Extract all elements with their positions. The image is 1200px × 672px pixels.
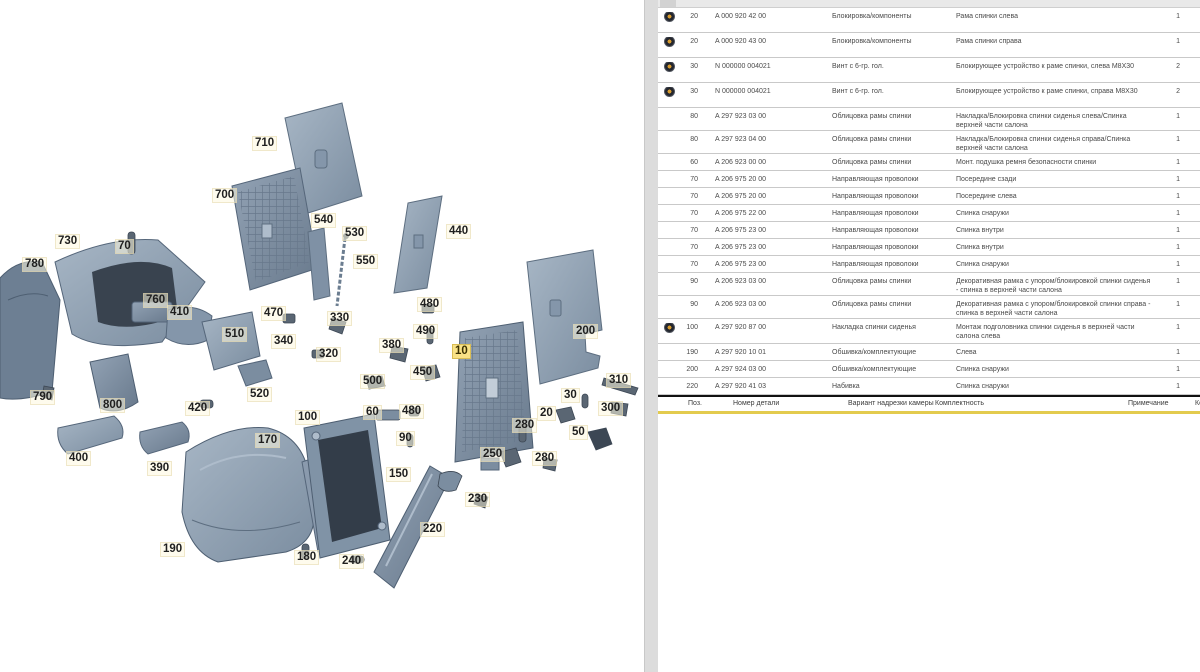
header-variant: Вариант надрезки камеры (848, 400, 934, 407)
row-quantity: 1 (1151, 112, 1187, 121)
table-row[interactable]: 30 N 000000 004021 Винт с 6-гр. гол. Бло… (658, 58, 1200, 83)
row-description: Рама спинки слева (955, 12, 1151, 21)
row-part-number: A 297 923 03 00 (698, 112, 815, 121)
diagram-callout-780[interactable]: 780 (22, 257, 47, 272)
blocks-400-390 (58, 416, 189, 454)
empty-table-area (658, 414, 1200, 654)
diagram-callout-220[interactable]: 220 (420, 522, 445, 537)
row-pos: 70 (676, 226, 698, 235)
row-quantity: 1 (1151, 348, 1187, 357)
seat-exploded-drawing (0, 0, 644, 672)
diagram-callout-500[interactable]: 500 (360, 374, 385, 389)
row-pos: 70 (676, 192, 698, 201)
row-quantity: 1 (1151, 158, 1187, 167)
diagram-callout-480[interactable]: 480 (417, 297, 442, 312)
row-part-number: A 206 923 03 00 (698, 300, 815, 309)
table-row[interactable]: 80 A 297 923 04 00 Облицовка рамы спинки… (658, 131, 1200, 154)
row-part-name: Направляющая проволоки (815, 209, 955, 218)
row-part-name: Обшивка/комплектующие (815, 348, 955, 357)
row-quantity: 2 (1151, 87, 1187, 96)
diagram-callout-380[interactable]: 380 (379, 338, 404, 353)
diagram-callout-250[interactable]: 250 (480, 447, 505, 462)
diagram-callout-550[interactable]: 550 (353, 254, 378, 269)
diagram-callout-150[interactable]: 150 (386, 467, 411, 482)
table-row[interactable]: 20 A 000 920 42 00 Блокировка/компоненты… (658, 8, 1200, 33)
info-icon[interactable] (664, 37, 675, 47)
row-quantity: 2 (1151, 62, 1187, 71)
scroll-corner (660, 0, 676, 7)
row-part-number: A 206 923 00 00 (698, 158, 815, 167)
next-group-header-row: Поз. Номер детали Вариант надрезки камер… (658, 395, 1200, 414)
row-part-number: A 206 975 20 00 (698, 175, 815, 184)
row-quantity: 1 (1151, 300, 1187, 309)
row-pos: 30 (676, 62, 698, 71)
row-quantity: 1 (1151, 12, 1187, 21)
row-pos: 70 (676, 175, 698, 184)
row-part-name: Облицовка рамы спинки (815, 135, 955, 144)
row-pos: 90 (676, 300, 698, 309)
pane-divider-scrollbar[interactable] (644, 0, 659, 672)
row-part-number: A 206 923 03 00 (698, 277, 815, 286)
diagram-callout-520[interactable]: 520 (247, 387, 272, 402)
row-description: Декоративная рамка с упором/блокировкой … (955, 277, 1151, 295)
row-pos: 80 (676, 135, 698, 144)
diagram-callout-100[interactable]: 100 (295, 410, 320, 425)
table-top-strip (658, 0, 1200, 8)
row-part-number: A 000 920 42 00 (698, 12, 815, 21)
diagram-callout-760[interactable]: 760 (143, 293, 168, 308)
info-icon[interactable] (664, 12, 675, 22)
row-quantity: 1 (1151, 37, 1187, 46)
row-part-number: A 206 975 22 00 (698, 209, 815, 218)
row-pos: 20 (676, 12, 698, 21)
table-row[interactable]: 70 A 206 975 23 00 Направляющая проволок… (658, 239, 1200, 256)
row-part-number: A 297 920 41 03 (698, 382, 815, 391)
diagram-callout-540[interactable]: 540 (311, 213, 336, 228)
diagram-callout-730[interactable]: 730 (55, 234, 80, 249)
header-pos: Поз. (688, 400, 702, 407)
row-pos: 90 (676, 277, 698, 286)
row-pos: 70 (676, 243, 698, 252)
table-row[interactable]: 80 A 297 923 03 00 Облицовка рамы спинки… (658, 108, 1200, 131)
row-part-number: A 206 975 23 00 (698, 243, 815, 252)
row-pos: 30 (676, 87, 698, 96)
diagram-callout-90[interactable]: 90 (396, 431, 415, 446)
diagram-callout-330[interactable]: 330 (327, 311, 352, 326)
diagram-callout-530[interactable]: 530 (342, 226, 367, 241)
diagram-callout-710[interactable]: 710 (252, 136, 277, 151)
row-pos: 80 (676, 112, 698, 121)
row-part-name: Блокировка/компоненты (815, 12, 955, 21)
diagram-callout-410[interactable]: 410 (167, 305, 192, 320)
table-row[interactable]: 70 A 206 975 22 00 Направляющая проволок… (658, 205, 1200, 222)
row-part-number: N 000000 004021 (698, 87, 815, 96)
diagram-callout-340[interactable]: 340 (271, 334, 296, 349)
info-icon[interactable] (664, 87, 675, 97)
row-part-number: A 000 920 43 00 (698, 37, 815, 46)
row-part-name: Винт с 6-гр. гол. (815, 87, 955, 96)
row-pos: 20 (676, 37, 698, 46)
diagram-callout-200[interactable]: 200 (573, 324, 598, 339)
row-description: Блокирующее устройство к раме спинки, сп… (955, 87, 1151, 96)
table-row[interactable]: 60 A 206 923 00 00 Облицовка рамы спинки… (658, 154, 1200, 171)
row-description: Посередине слева (955, 192, 1151, 201)
info-icon[interactable] (664, 323, 675, 333)
row-part-name: Винт с 6-гр. гол. (815, 62, 955, 71)
diagram-callout-50[interactable]: 50 (569, 425, 588, 440)
row-part-number: N 000000 004021 (698, 62, 815, 71)
row-part-number: A 297 924 03 00 (698, 365, 815, 374)
row-part-name: Направляющая проволоки (815, 226, 955, 235)
backrest-cushion-190 (182, 428, 314, 563)
row-part-name: Блокировка/компоненты (815, 37, 955, 46)
row-quantity: 1 (1151, 382, 1187, 391)
diagram-callout-60[interactable]: 60 (363, 405, 382, 420)
diagram-callout-470[interactable]: 470 (261, 306, 286, 321)
back-panel-200 (527, 250, 602, 384)
backrest-frame-100 (304, 414, 390, 558)
row-pos: 100 (676, 323, 698, 332)
diagram-callout-230[interactable]: 230 (465, 492, 490, 507)
row-quantity: 1 (1151, 209, 1187, 218)
table-row[interactable]: 90 A 206 923 03 00 Облицовка рамы спинки… (658, 296, 1200, 319)
row-quantity: 1 (1151, 365, 1187, 374)
diagram-callout-280[interactable]: 280 (512, 418, 537, 433)
row-quantity: 1 (1151, 226, 1187, 235)
row-part-name: Облицовка рамы спинки (815, 112, 955, 121)
diagram-callout-190[interactable]: 190 (160, 542, 185, 557)
row-pos: 220 (676, 382, 698, 391)
row-quantity: 1 (1151, 192, 1187, 201)
diagram-callout-440[interactable]: 440 (446, 224, 471, 239)
row-description: Спинка внутри (955, 226, 1151, 235)
table-row[interactable]: 190 A 297 920 10 01 Обшивка/комплектующи… (658, 344, 1200, 361)
row-part-name: Направляющая проволоки (815, 243, 955, 252)
row-part-name: Накладка спинки сиденья (815, 323, 955, 332)
row-part-name: Набивка (815, 382, 955, 391)
diagram-callout-480[interactable]: 480 (399, 404, 424, 419)
row-description: Монтаж подголовника спинки сиденья в вер… (955, 323, 1151, 341)
row-part-name: Направляющая проволоки (815, 260, 955, 269)
row-quantity: 1 (1151, 277, 1187, 286)
row-quantity: 1 (1151, 260, 1187, 269)
row-description: Декоративная рамка с упором/блокировкой … (955, 300, 1151, 318)
row-description: Спинка снаружи (955, 209, 1151, 218)
diagram-callout-400[interactable]: 400 (66, 451, 91, 466)
header-completeness: Комплектность (935, 400, 984, 407)
diagram-callout-490[interactable]: 490 (413, 324, 438, 339)
row-part-number: A 297 920 10 01 (698, 348, 815, 357)
row-quantity: 1 (1151, 135, 1187, 144)
row-pos: 70 (676, 260, 698, 269)
exploded-diagram-pane: 7107007307078054053055044076041047033048… (0, 0, 644, 672)
diagram-callout-30[interactable]: 30 (561, 388, 580, 403)
row-part-name: Направляющая проволоки (815, 192, 955, 201)
diagram-callout-180[interactable]: 180 (294, 550, 319, 565)
row-part-number: A 297 920 87 00 (698, 323, 815, 332)
row-part-number: A 297 923 04 00 (698, 135, 815, 144)
diagram-callout-70[interactable]: 70 (115, 239, 134, 254)
row-description: Спинка снаружи (955, 365, 1151, 374)
diagram-callout-700[interactable]: 700 (212, 188, 237, 203)
row-description: Спинка снаружи (955, 260, 1151, 269)
diagram-callout-510[interactable]: 510 (222, 327, 247, 342)
table-row[interactable]: 70 A 206 975 20 00 Направляющая проволок… (658, 171, 1200, 188)
row-part-name: Облицовка рамы спинки (815, 300, 955, 309)
table-row[interactable]: 220 A 297 920 41 03 Набивка Спинка снару… (658, 378, 1200, 395)
side-panel-440 (394, 196, 442, 293)
row-quantity: 1 (1151, 323, 1187, 332)
table-row[interactable]: 20 A 000 920 43 00 Блокировка/компоненты… (658, 33, 1200, 58)
parts-table-body: 20 A 000 920 42 00 Блокировка/компоненты… (658, 8, 1200, 395)
table-row[interactable]: 70 A 206 975 23 00 Направляющая проволок… (658, 222, 1200, 239)
row-description: Спинка снаружи (955, 382, 1151, 391)
diagram-callout-300[interactable]: 300 (598, 401, 623, 416)
diagram-callout-10-selected[interactable]: 10 (452, 344, 471, 359)
wedge-510-520 (202, 312, 272, 386)
table-row[interactable]: 70 A 206 975 23 00 Направляющая проволок… (658, 256, 1200, 273)
row-description: Рама спинки справа (955, 37, 1151, 46)
row-part-number: A 206 975 23 00 (698, 226, 815, 235)
table-row[interactable]: 70 A 206 975 20 00 Направляющая проволок… (658, 188, 1200, 205)
parts-list-pane: 20 A 000 920 42 00 Блокировка/компоненты… (658, 0, 1200, 672)
diagram-callout-800[interactable]: 800 (100, 398, 125, 413)
row-pos: 190 (676, 348, 698, 357)
row-part-name: Облицовка рамы спинки (815, 158, 955, 167)
row-part-number: A 206 975 23 00 (698, 260, 815, 269)
table-row[interactable]: 30 N 000000 004021 Винт с 6-гр. гол. Бло… (658, 83, 1200, 108)
table-row[interactable]: 90 A 206 923 03 00 Облицовка рамы спинки… (658, 273, 1200, 296)
table-row[interactable]: 100 A 297 920 87 00 Накладка спинки сиде… (658, 319, 1200, 344)
header-part-number: Номер детали (733, 400, 779, 407)
diagram-callout-420[interactable]: 420 (185, 401, 210, 416)
diagram-callout-20[interactable]: 20 (537, 406, 556, 421)
header-note: Примечание (1128, 400, 1169, 407)
row-description: Спинка внутри (955, 243, 1151, 252)
row-description: Монт. подушка ремня безопасности спинки (955, 158, 1151, 167)
row-description: Слева (955, 348, 1151, 357)
row-pos: 60 (676, 158, 698, 167)
diagram-callout-240[interactable]: 240 (339, 554, 364, 569)
row-part-name: Облицовка рамы спинки (815, 277, 955, 286)
table-row[interactable]: 200 A 297 924 03 00 Обшивка/комплектующи… (658, 361, 1200, 378)
diagram-callout-790[interactable]: 790 (30, 390, 55, 405)
row-part-name: Направляющая проволоки (815, 175, 955, 184)
row-pos: 200 (676, 365, 698, 374)
header-qty-cut: Кол. (1195, 400, 1200, 407)
row-pos: 70 (676, 209, 698, 218)
row-description: Блокирующее устройство к раме спинки, сл… (955, 62, 1151, 71)
row-description: Накладка/Блокировка спинки сиденья справ… (955, 135, 1151, 153)
diagram-callout-170[interactable]: 170 (255, 433, 280, 448)
diagram-callout-390[interactable]: 390 (147, 461, 172, 476)
row-quantity: 1 (1151, 243, 1187, 252)
row-description: Посередине сзади (955, 175, 1151, 184)
row-description: Накладка/Блокировка спинки сиденья слева… (955, 112, 1151, 130)
row-part-name: Обшивка/комплектующие (815, 365, 955, 374)
row-quantity: 1 (1151, 175, 1187, 184)
diagram-callout-310[interactable]: 310 (606, 373, 631, 388)
row-part-number: A 206 975 20 00 (698, 192, 815, 201)
diagram-callout-450[interactable]: 450 (410, 365, 435, 380)
diagram-callout-320[interactable]: 320 (316, 347, 341, 362)
info-icon[interactable] (664, 62, 675, 72)
diagram-callout-280[interactable]: 280 (532, 451, 557, 466)
